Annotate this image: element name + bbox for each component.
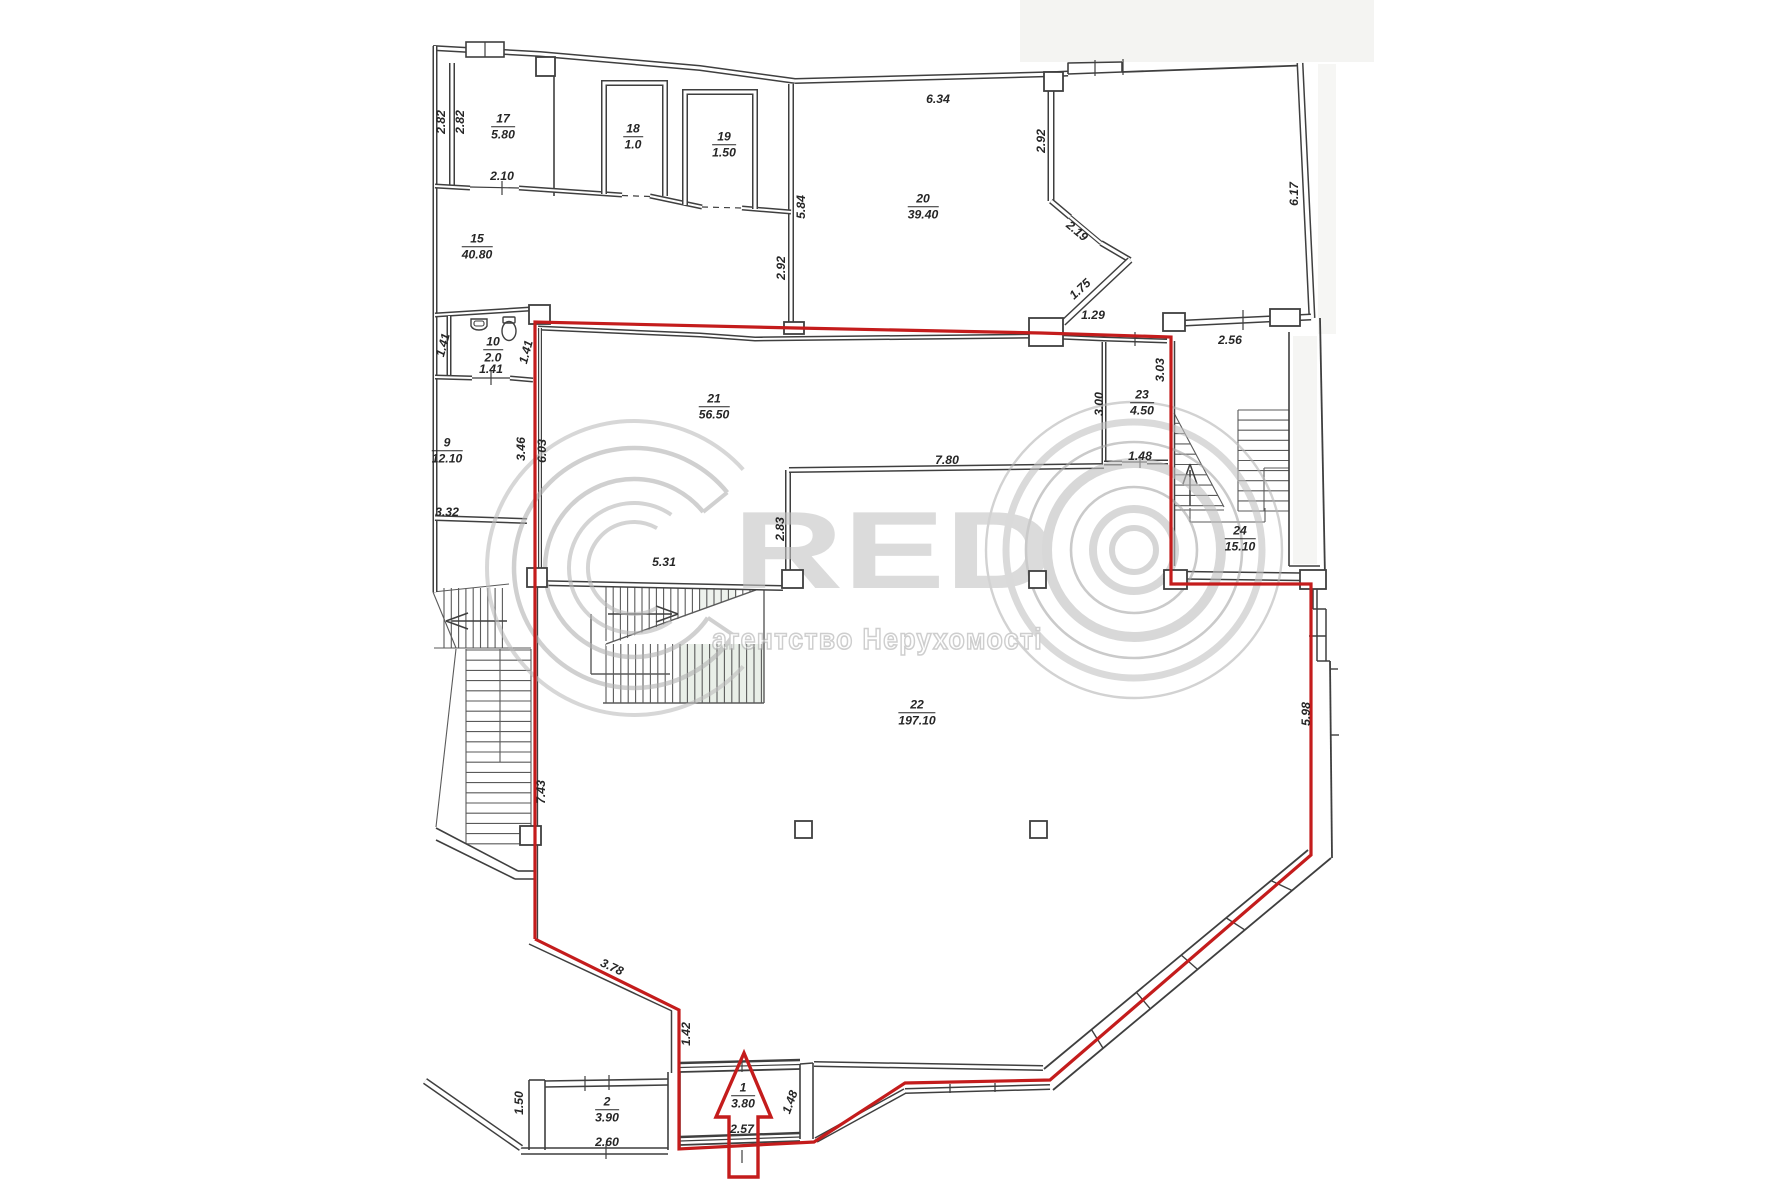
svg-text:агентство Нерухомості: агентство Нерухомості: [712, 623, 1043, 656]
